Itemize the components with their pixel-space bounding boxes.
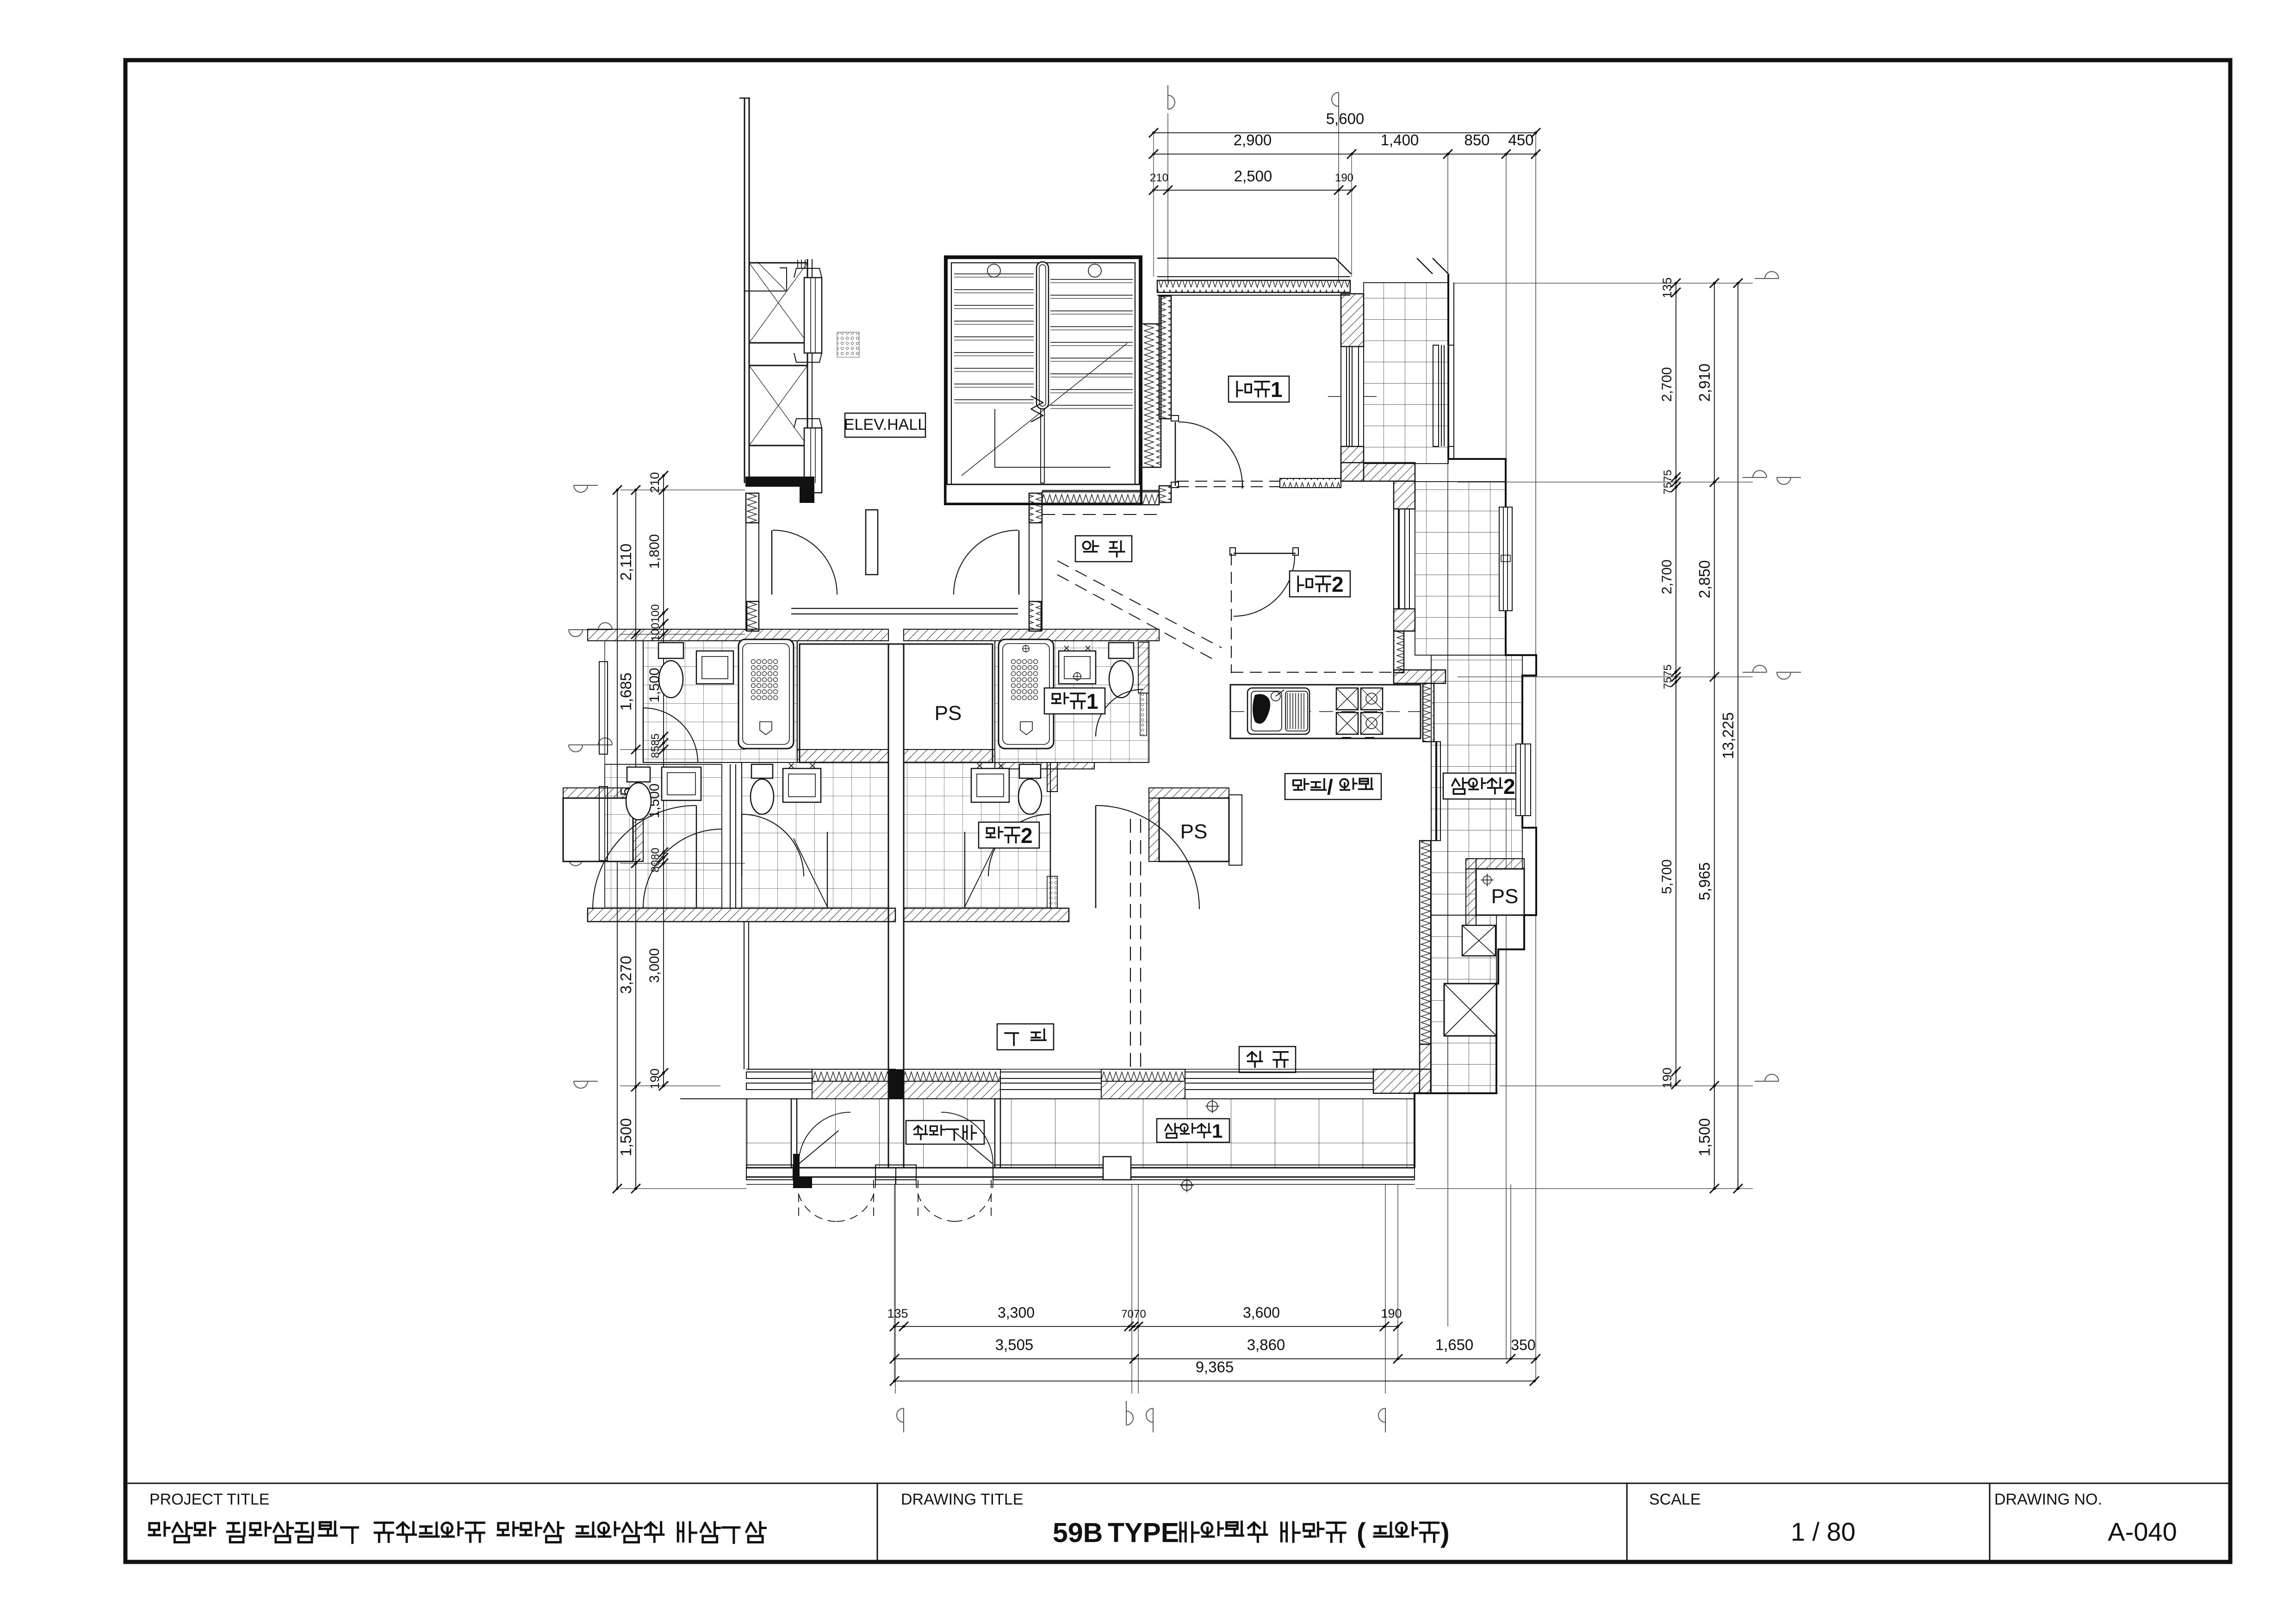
svg-text:9,365: 9,365 xyxy=(1196,1358,1234,1375)
svg-text:1: 1 xyxy=(1086,689,1098,713)
svg-text:190: 190 xyxy=(1335,172,1353,184)
svg-text:/: / xyxy=(1327,775,1333,799)
svg-text:190: 190 xyxy=(1381,1307,1402,1320)
svg-text:2: 2 xyxy=(1021,824,1033,848)
svg-text:1,500: 1,500 xyxy=(1696,1118,1713,1157)
svg-text:2: 2 xyxy=(1503,774,1515,799)
svg-text:2,500: 2,500 xyxy=(1234,167,1272,185)
svg-text:59B: 59B xyxy=(1053,1518,1103,1548)
svg-text:7070: 7070 xyxy=(1121,1308,1146,1320)
svg-text:(: ( xyxy=(1357,1518,1366,1548)
svg-text:210: 210 xyxy=(1150,172,1168,184)
svg-text:DRAWING TITLE: DRAWING TITLE xyxy=(901,1491,1023,1508)
svg-text:1: 1 xyxy=(1271,378,1283,402)
svg-text:2: 2 xyxy=(1332,572,1344,596)
svg-text:3,600: 3,600 xyxy=(1243,1304,1280,1321)
svg-text:1 / 80: 1 / 80 xyxy=(1791,1517,1855,1546)
svg-text:3,860: 3,860 xyxy=(1247,1336,1285,1353)
svg-text:2,700: 2,700 xyxy=(1659,367,1675,402)
svg-text:13,225: 13,225 xyxy=(1719,712,1737,759)
svg-text:190: 190 xyxy=(648,1068,662,1089)
svg-text:2,110: 2,110 xyxy=(617,544,634,581)
svg-text:1,650: 1,650 xyxy=(1435,1336,1474,1353)
svg-text:7575: 7575 xyxy=(1662,470,1674,494)
svg-text:135: 135 xyxy=(887,1307,908,1320)
svg-text:850: 850 xyxy=(1464,131,1489,149)
svg-text:3,270: 3,270 xyxy=(617,956,634,994)
svg-text:1,685: 1,685 xyxy=(617,673,634,711)
svg-text:5,600: 5,600 xyxy=(1326,110,1365,127)
svg-text:3,300: 3,300 xyxy=(998,1304,1035,1321)
svg-text:1: 1 xyxy=(1212,1120,1222,1142)
svg-text:190: 190 xyxy=(1660,1067,1674,1088)
svg-text:DRAWING NO.: DRAWING NO. xyxy=(1994,1491,2102,1508)
svg-text:135: 135 xyxy=(1660,277,1674,298)
svg-text:210: 210 xyxy=(648,472,662,493)
svg-text:2,700: 2,700 xyxy=(1659,559,1675,594)
svg-text:1,800: 1,800 xyxy=(647,534,662,569)
svg-text:PROJECT TITLE: PROJECT TITLE xyxy=(149,1491,269,1508)
svg-text:3,505: 3,505 xyxy=(995,1336,1034,1353)
svg-text:7575: 7575 xyxy=(1662,664,1674,689)
svg-text:3,000: 3,000 xyxy=(647,948,662,983)
svg-text:ELEV.HALL: ELEV.HALL xyxy=(844,416,926,434)
svg-text:2,910: 2,910 xyxy=(1696,364,1713,402)
svg-text:350: 350 xyxy=(1511,1337,1535,1353)
svg-text:2,850: 2,850 xyxy=(1696,560,1713,599)
svg-text:TYPE: TYPE xyxy=(1108,1518,1179,1548)
svg-text:1,400: 1,400 xyxy=(1381,131,1419,149)
svg-text:5,700: 5,700 xyxy=(1659,859,1675,894)
svg-text:A-040: A-040 xyxy=(2108,1517,2177,1546)
svg-text:PS: PS xyxy=(935,702,962,725)
svg-text:PS: PS xyxy=(1180,820,1208,843)
svg-text:): ) xyxy=(1440,1518,1450,1548)
svg-text:5,965: 5,965 xyxy=(1696,862,1713,901)
svg-text:450: 450 xyxy=(1508,131,1533,149)
svg-text:SCALE: SCALE xyxy=(1649,1491,1701,1508)
svg-text:2,900: 2,900 xyxy=(1234,131,1272,149)
svg-text:1,500: 1,500 xyxy=(617,1118,634,1157)
svg-text:PS: PS xyxy=(1491,885,1519,908)
